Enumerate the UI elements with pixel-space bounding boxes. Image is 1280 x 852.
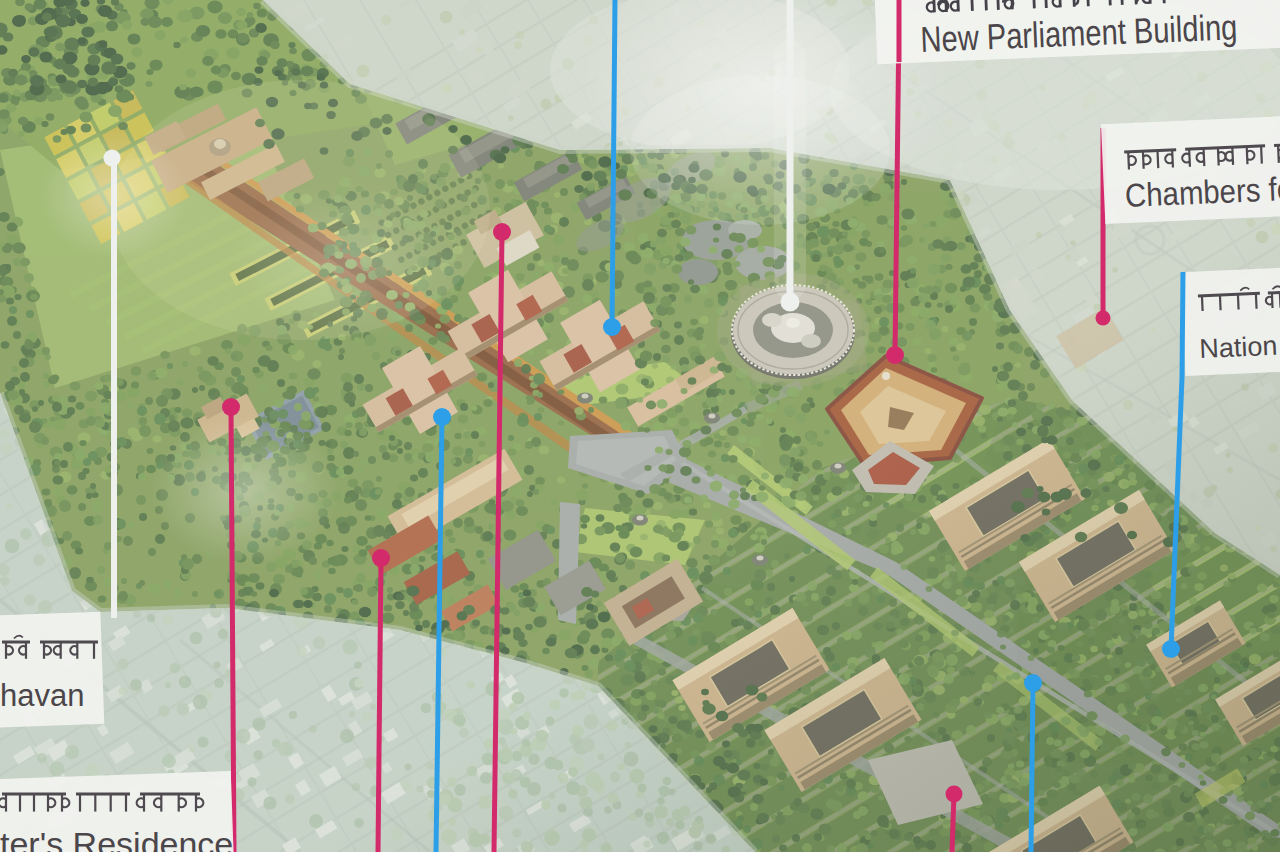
svg-text:Chambers fo: Chambers fo xyxy=(1124,170,1280,214)
svg-text:havan: havan xyxy=(0,678,84,713)
svg-text:ter's Residence: ter's Residence xyxy=(0,825,233,852)
svg-text:Nation: Nation xyxy=(1199,331,1278,364)
